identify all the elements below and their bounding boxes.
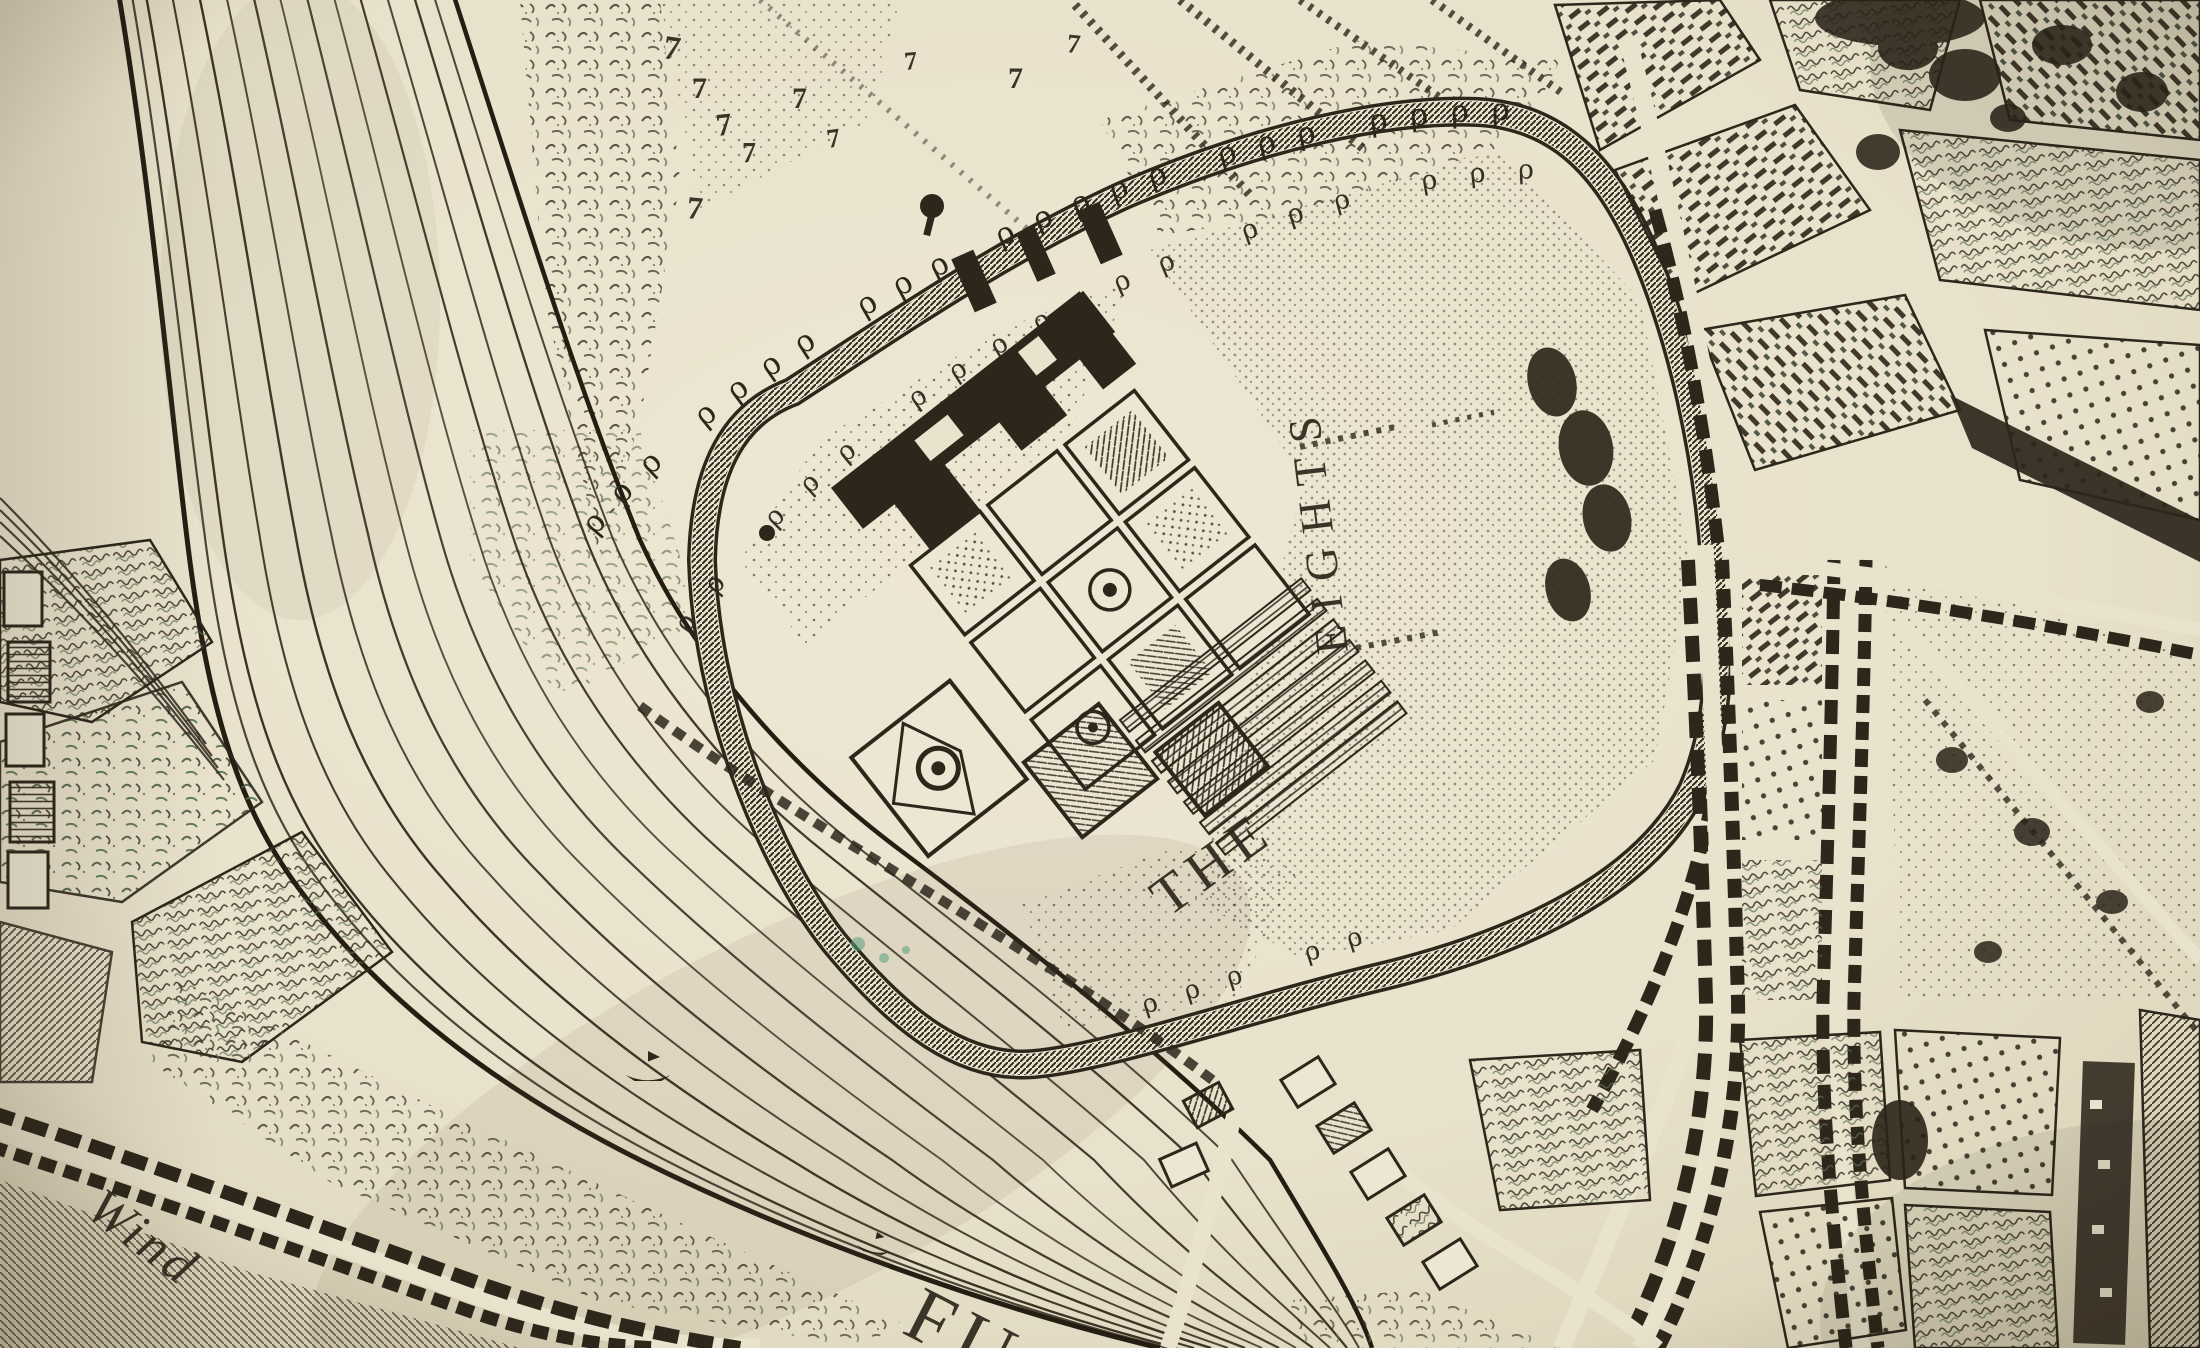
antique-map-photo: 7 7 7 7 7 7 7 7 7 7 [0,0,2200,1348]
left-edge-shade [0,0,220,1348]
engraved-map: 7 7 7 7 7 7 7 7 7 7 [0,0,2200,1348]
vignette [0,0,2200,1348]
